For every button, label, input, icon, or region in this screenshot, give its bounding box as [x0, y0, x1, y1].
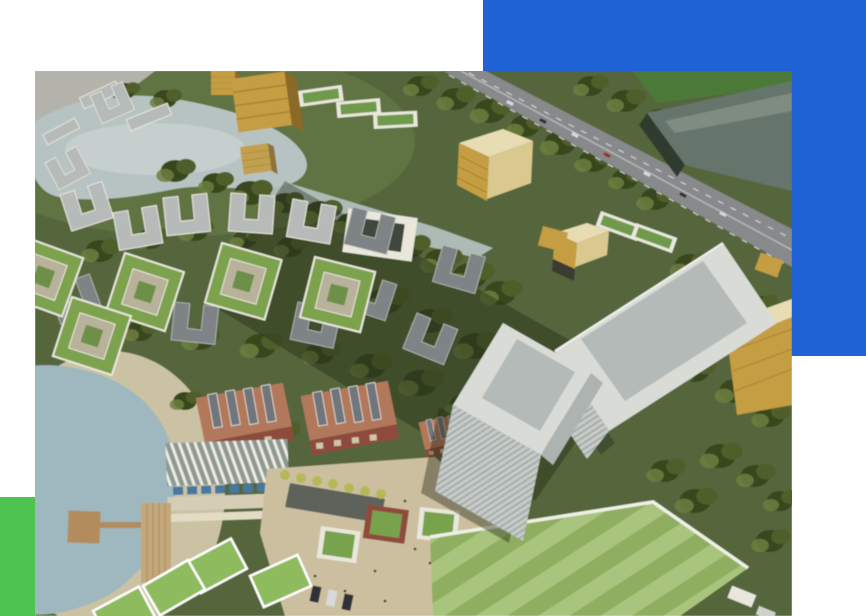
pier-walkway — [98, 522, 146, 528]
pier-platform — [67, 510, 100, 543]
green-accent-block — [0, 497, 35, 616]
masterplan-scene — [35, 71, 792, 616]
page-canvas — [0, 0, 866, 616]
water-sheen — [65, 123, 245, 175]
red-pavilion — [363, 504, 409, 544]
pavilion — [317, 526, 361, 563]
masterplan-aerial-photo — [35, 71, 792, 616]
green-courtyard-block — [300, 257, 375, 332]
green-roof-office — [373, 111, 418, 129]
